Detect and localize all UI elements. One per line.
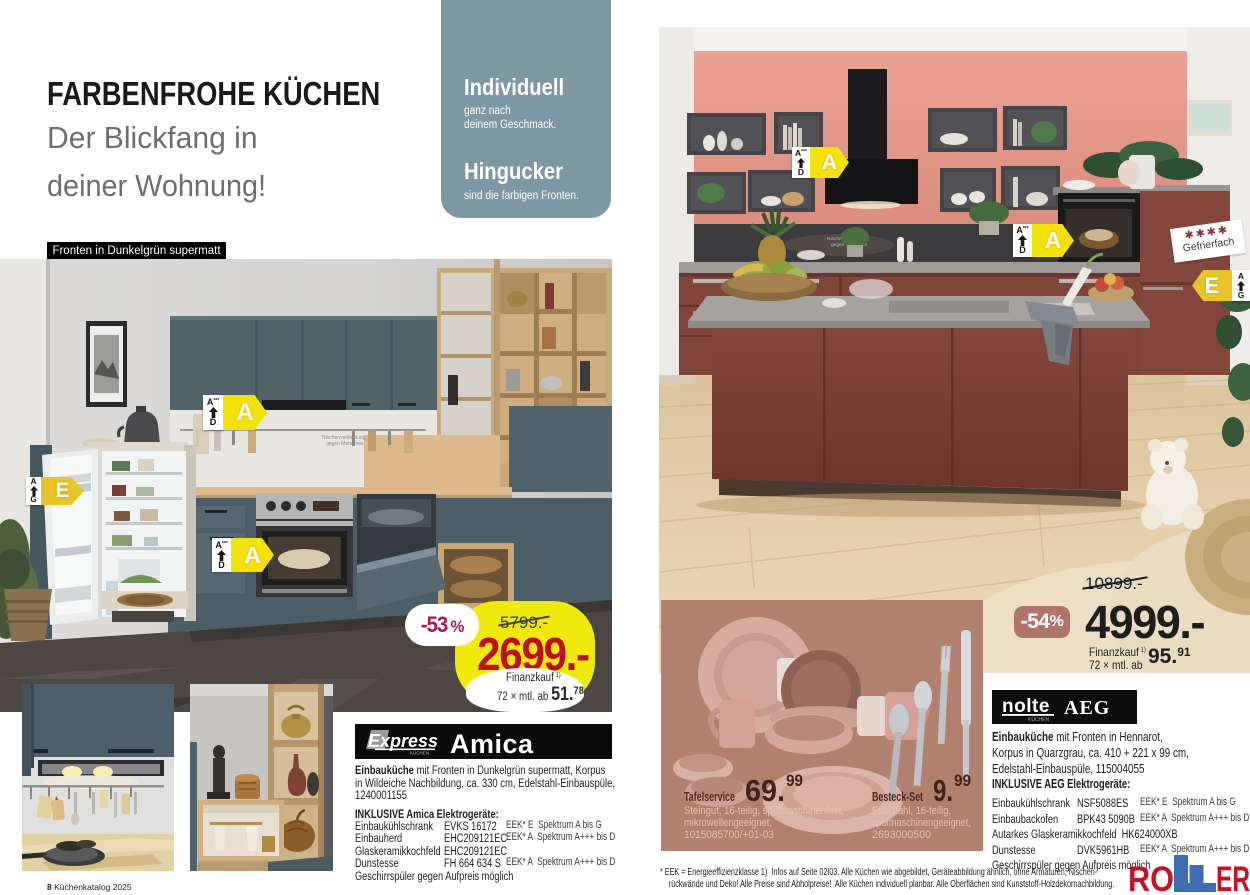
svg-text:Express: Express [368, 731, 438, 751]
svg-text:2693000500: 2693000500 [872, 829, 931, 841]
svg-text:Steingut, 16-teilig, spülmasch: Steingut, 16-teilig, spülmaschinenfest, [684, 805, 844, 817]
svg-text:1015085700/+01-03: 1015085700/+01-03 [684, 829, 774, 841]
svg-text:9.: 9. [933, 773, 953, 808]
svg-text:KÜCHEN: KÜCHEN [1028, 716, 1050, 723]
svg-text:gegen Mehrpreis: gegen Mehrpreis [326, 441, 364, 447]
svg-text:AEG: AEG [1064, 697, 1110, 719]
svg-text:RO: RO [1128, 860, 1174, 895]
svg-text:KÜCHEN: KÜCHEN [410, 750, 429, 756]
svg-text:mikrowellengeeignet,: mikrowellengeeignet, [684, 817, 772, 829]
svg-text:Besteck-Set: Besteck-Set [872, 790, 924, 804]
svg-text:69.: 69. [745, 773, 785, 808]
svg-text:spülmaschinengeeignet,: spülmaschinengeeignet, [872, 817, 971, 829]
svg-text:ER: ER [1216, 860, 1250, 895]
svg-text:99: 99 [954, 771, 971, 790]
svg-text:Edelstahl, 16-teilig,: Edelstahl, 16-teilig, [872, 805, 951, 817]
svg-text:99: 99 [786, 771, 803, 790]
svg-text:Tafelservice: Tafelservice [684, 790, 735, 804]
svg-text:nolte: nolte [1002, 696, 1050, 717]
